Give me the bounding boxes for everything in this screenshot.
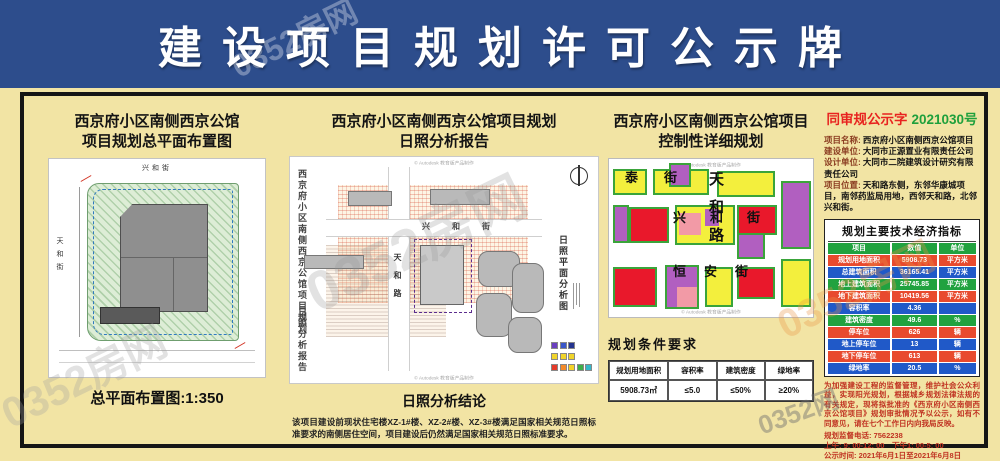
tech-table-row: 建筑密度49.6%	[828, 315, 976, 326]
conclusion-text: 该项目建设前现状住宅楼XZ-1#楼、XZ-2#楼、XZ-3#楼满足国家相关规范日…	[288, 416, 600, 441]
building-footprint	[120, 204, 208, 312]
existing-building	[304, 255, 364, 269]
compass-icon	[570, 167, 588, 185]
tech-table-row: 总建筑面积36165.41平方米	[828, 267, 976, 278]
zoning-title: 西京府小区南侧西京公馆项目 控制性详细规划	[608, 112, 814, 151]
sunshine-legend-title: 日照平面分析图	[557, 235, 570, 312]
street-label-vertical: 天和路	[392, 253, 403, 307]
zoning-block	[737, 233, 765, 259]
condition-header-cell: 容积率	[668, 361, 716, 380]
permit-number: 2021030号	[911, 112, 977, 127]
street-label-xinghejie: 兴和街	[673, 207, 784, 226]
condition-value-cell: 5908.73㎡	[609, 380, 668, 401]
tech-cell: 626	[892, 327, 938, 338]
street-label-henganjie: 恒安街	[673, 261, 766, 280]
autodesk-note: © Autodesk 教育版产品制作	[629, 308, 792, 315]
road-line	[59, 362, 255, 363]
legend-swatch	[551, 364, 558, 371]
tech-cell: 平方米	[939, 267, 976, 278]
sunshine-drawing: © Autodesk 教育版产品制作 © Autodesk 教育版产品制作 西京…	[289, 156, 599, 384]
panel-zoning: 西京府小区南侧西京公馆项目 控制性详细规划 © Autodesk 教育版产品制作…	[608, 112, 814, 402]
street-label-left: 天和街	[54, 237, 64, 276]
permit-number-line: 同审规公示字2021030号	[824, 108, 980, 128]
legend-swatch	[568, 364, 575, 371]
proposed-building	[420, 245, 464, 305]
info-field: 项目位置:天和路东侧，东邻华康城项目，南邻药监局用地，西邻天和路，北邻兴和街。	[824, 180, 980, 214]
zoning-block	[629, 207, 669, 243]
info-field: 设计单位:大同市二院建筑设计研究有限责任公司	[824, 157, 980, 179]
tech-table-row: 地上建筑面积25745.85平方米	[828, 279, 976, 290]
autodesk-note: © Autodesk 教育版产品制作	[321, 159, 567, 166]
tech-table-row: 规划用地面积5908.73平方米	[828, 255, 976, 266]
info-field: 项目名称:西京府小区南侧西京公馆项目	[824, 135, 980, 146]
tech-table: 项目数值单位规划用地面积5908.73平方米总建筑面积36165.41平方米地上…	[828, 243, 976, 374]
autodesk-note: © Autodesk 教育版产品制作	[321, 374, 567, 381]
zoning-map: © Autodesk 教育版产品制作 © Autodesk 教育版产品制作	[608, 158, 814, 318]
sunshine-side-subtitle: 日照分析报告	[296, 307, 309, 373]
tech-cell: 地下建筑面积	[828, 291, 890, 302]
street-label-tianhelu: 天和路	[705, 171, 726, 255]
street-label-top: 兴和街	[49, 163, 265, 173]
tech-cell: %	[939, 363, 976, 374]
publicity-period: 公示时间: 2021年6月1日至2021年6月8日	[824, 451, 980, 461]
notice-board-photo: 建设项目规划许可公示牌 西京府小区南侧西京公馆 项目规划总平面布置图 兴和街 天…	[0, 0, 1000, 461]
legend-swatch	[568, 342, 575, 349]
site-plan-title: 西京府小区南侧西京公馆 项目规划总平面布置图	[34, 112, 280, 151]
tech-indicators-box: 规划主要技术经济指标 项目数值单位规划用地面积5908.73平方米总建筑面积36…	[824, 219, 980, 377]
zoning-block	[781, 259, 811, 307]
board-frame: 西京府小区南侧西京公馆 项目规划总平面布置图 兴和街 天和街	[20, 92, 988, 448]
info-fields: 项目名称:西京府小区南侧西京公馆项目建设单位:大同市正源置业有限责任公司设计单位…	[824, 135, 980, 214]
tech-cell: %	[939, 315, 976, 326]
tech-cell: 地上建筑面积	[828, 279, 890, 290]
office-hours: 上午: 9: 00-12: 00 下午1: 00-5: 00	[824, 441, 980, 451]
dimension-line	[79, 187, 80, 337]
tech-header-cell: 项目	[828, 243, 890, 254]
info-field-label: 项目名称:	[824, 135, 861, 145]
legend-row	[551, 342, 592, 349]
tech-cell: 25745.85	[892, 279, 938, 290]
annex-building	[100, 307, 160, 324]
tech-cell: 36165.41	[892, 267, 938, 278]
legend-swatch	[577, 364, 584, 371]
tech-cell: 辆	[939, 339, 976, 350]
condition-header-cell: 绿地率	[765, 361, 813, 380]
site-plan-drawing: 兴和街 天和街	[48, 158, 266, 378]
conditions-header-row: 规划用地面积容积率建筑密度绿地率	[609, 361, 813, 380]
tech-table-title: 规划主要技术经济指标	[828, 223, 976, 242]
legend-swatch	[551, 342, 558, 349]
condition-value-cell: ≤5.0	[668, 380, 716, 401]
board-main-title: 建设项目规划许可公示牌	[138, 12, 862, 76]
tech-table-row: 停车位626辆	[828, 327, 976, 338]
tech-cell: 辆	[939, 327, 976, 338]
neighbor-building	[476, 293, 512, 337]
title-band: 建设项目规划许可公示牌	[0, 0, 1000, 88]
tech-table-header: 项目数值单位	[828, 243, 976, 254]
tech-cell: 停车位	[828, 327, 890, 338]
panel-permit-info: 同审规公示字2021030号 项目名称:西京府小区南侧西京公馆项目建设单位:大同…	[824, 108, 980, 461]
legend-row	[551, 353, 592, 360]
tech-table-row: 容积率4.36	[828, 303, 976, 314]
tech-cell: 平方米	[939, 255, 976, 266]
tech-cell: 49.6	[892, 315, 938, 326]
existing-building	[348, 191, 392, 206]
tech-header-cell: 单位	[939, 243, 976, 254]
legend-row	[551, 364, 592, 371]
tech-cell	[939, 303, 976, 314]
info-field-label: 设计单位:	[824, 157, 861, 167]
site-parcel	[87, 183, 239, 341]
tech-cell: 建筑密度	[828, 315, 890, 326]
red-survey-mark	[81, 175, 92, 182]
legend-swatch	[560, 353, 567, 360]
tech-cell: 4.36	[892, 303, 938, 314]
panel-sunshine: 西京府小区南侧西京公馆项目规划 日照分析报告 © Autodesk 教育版产品制…	[288, 112, 600, 441]
tech-cell: 平方米	[939, 279, 976, 290]
tech-cell: 10419.56	[892, 291, 938, 302]
zoning-block	[613, 267, 657, 307]
supervision-phone: 规划监督电话: 7562238	[824, 431, 980, 441]
legend-swatch	[585, 364, 592, 371]
tech-table-row: 地下停车位613辆	[828, 351, 976, 362]
info-field-value: 大同市正源置业有限责任公司	[863, 146, 974, 156]
conditions-heading: 规划条件要求	[608, 334, 814, 353]
street-label-taijie: 泰街	[625, 167, 703, 186]
legend-swatch	[560, 342, 567, 349]
zoning-block	[781, 181, 811, 249]
tech-cell: 20.5	[892, 363, 938, 374]
shadow-analysis-area: 兴和街 天和路	[326, 167, 542, 371]
condition-value-cell: ≤50%	[717, 380, 765, 401]
tech-header-cell: 数值	[892, 243, 938, 254]
conditions-table: 规划用地面积容积率建筑密度绿地率5908.73㎡≤5.0≤50%≥20%	[608, 360, 814, 402]
street-label-horizontal: 兴和街	[422, 221, 512, 232]
condition-header-cell: 规划用地面积	[609, 361, 668, 380]
legend-swatch	[560, 364, 567, 371]
tech-cell: 地下停车位	[828, 351, 890, 362]
tech-cell: 绿地率	[828, 363, 890, 374]
tech-cell: 13	[892, 339, 938, 350]
tech-cell: 总建筑面积	[828, 267, 890, 278]
tech-cell: 辆	[939, 351, 976, 362]
condition-value-cell: ≥20%	[765, 380, 813, 401]
legend-swatch	[551, 353, 558, 360]
panel-site-plan: 西京府小区南侧西京公馆 项目规划总平面布置图 兴和街 天和街	[34, 112, 280, 408]
zoning-subblock	[677, 287, 697, 307]
info-field-label: 项目位置:	[824, 180, 861, 190]
info-field-label: 建设单位:	[824, 146, 861, 156]
neighbor-building	[508, 317, 542, 353]
tech-table-row: 地下建筑面积10419.56平方米	[828, 291, 976, 302]
conclusion-title: 日照分析结论	[288, 391, 600, 411]
neighbor-building	[512, 263, 544, 313]
tech-cell: 地上停车位	[828, 339, 890, 350]
existing-building	[430, 189, 490, 205]
zoning-block	[613, 205, 629, 243]
tech-cell: 613	[892, 351, 938, 362]
conditions-value-row: 5908.73㎡≤5.0≤50%≥20%	[609, 380, 813, 401]
sunshine-title: 西京府小区南侧西京公馆项目规划 日照分析报告	[288, 112, 600, 151]
tech-table-row: 绿地率20.5%	[828, 363, 976, 374]
contact-info: 规划监督电话: 7562238 上午: 9: 00-12: 00 下午1: 00…	[824, 431, 980, 461]
site-plan-caption: 总平面布置图:1:350	[34, 387, 280, 408]
red-survey-mark	[235, 342, 246, 349]
road-line	[59, 350, 255, 351]
public-notice-text: 为加强建设工程的监督管理，维护社会公众利益，实现阳光规划，根据城乡规划法律法规的…	[824, 381, 980, 429]
sun-legend	[551, 342, 592, 371]
tech-cell: 规划用地面积	[828, 255, 890, 266]
condition-header-cell: 建筑密度	[717, 361, 765, 380]
info-field: 建设单位:大同市正源置业有限责任公司	[824, 146, 980, 157]
tech-table-row: 地上停车位13辆	[828, 339, 976, 350]
legend-swatch	[568, 353, 575, 360]
tech-cell: 平方米	[939, 291, 976, 302]
tech-cell: 5908.73	[892, 255, 938, 266]
tech-cell: 容积率	[828, 303, 890, 314]
info-field-value: 西京府小区南侧西京公馆项目	[863, 135, 974, 145]
